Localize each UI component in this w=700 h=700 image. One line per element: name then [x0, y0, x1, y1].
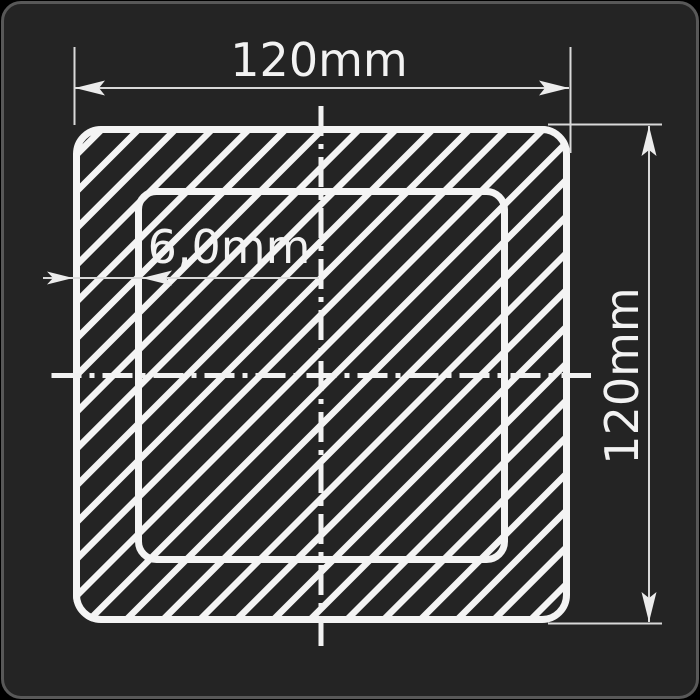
- drawing-canvas: 120mm 120mm 6,0mm: [1, 1, 699, 699]
- cross-section-drawing: 120mm 120mm 6,0mm: [4, 4, 698, 698]
- thickness-label: 6,0mm: [148, 220, 311, 274]
- width-label: 120mm: [230, 33, 407, 87]
- height-label: 120mm: [595, 287, 649, 464]
